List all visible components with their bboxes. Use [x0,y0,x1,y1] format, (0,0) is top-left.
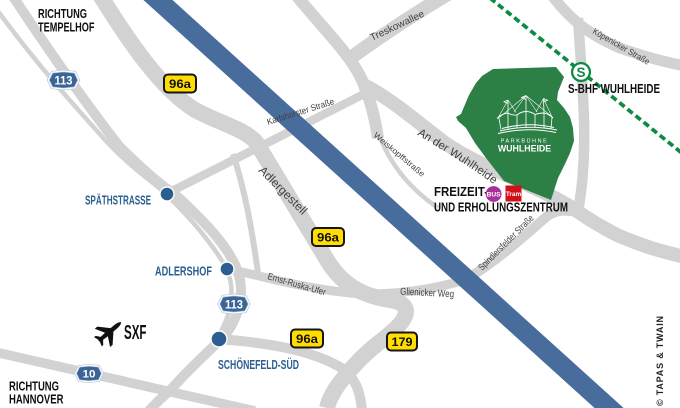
svg-text:S-BHF WUHLHEIDE: S-BHF WUHLHEIDE [568,82,660,96]
svg-text:10: 10 [83,369,96,381]
svg-text:96a: 96a [317,231,339,245]
svg-text:SCHÖNEFELD-SÜD: SCHÖNEFELD-SÜD [218,357,299,372]
svg-text:RICHTUNG: RICHTUNG [9,380,59,394]
svg-text:S: S [576,65,585,80]
svg-text:96a: 96a [296,332,318,346]
svg-text:SXF: SXF [124,322,147,344]
svg-text:UND ERHOLUNGSZENTRUM: UND ERHOLUNGSZENTRUM [434,200,568,215]
svg-text:Tram: Tram [506,191,522,198]
svg-text:179: 179 [392,335,413,349]
svg-text:113: 113 [225,297,243,311]
svg-text:RICHTUNG: RICHTUNG [38,7,87,21]
svg-text:96a: 96a [169,77,191,91]
svg-text:ADLERSHOF: ADLERSHOF [155,264,212,279]
svg-text:SPÄTHSTRASSE: SPÄTHSTRASSE [85,193,151,208]
svg-text:113: 113 [55,73,73,87]
svg-text:TEMPELHOF: TEMPELHOF [38,21,95,35]
svg-text:FREIZEIT-: FREIZEIT- [434,184,488,199]
svg-text:WUHLHEIDE: WUHLHEIDE [498,144,551,154]
svg-text:© TAPAS & TWAIN: © TAPAS & TWAIN [655,315,665,406]
svg-text:HANNOVER: HANNOVER [9,393,64,407]
svg-text:BUS: BUS [487,191,502,198]
